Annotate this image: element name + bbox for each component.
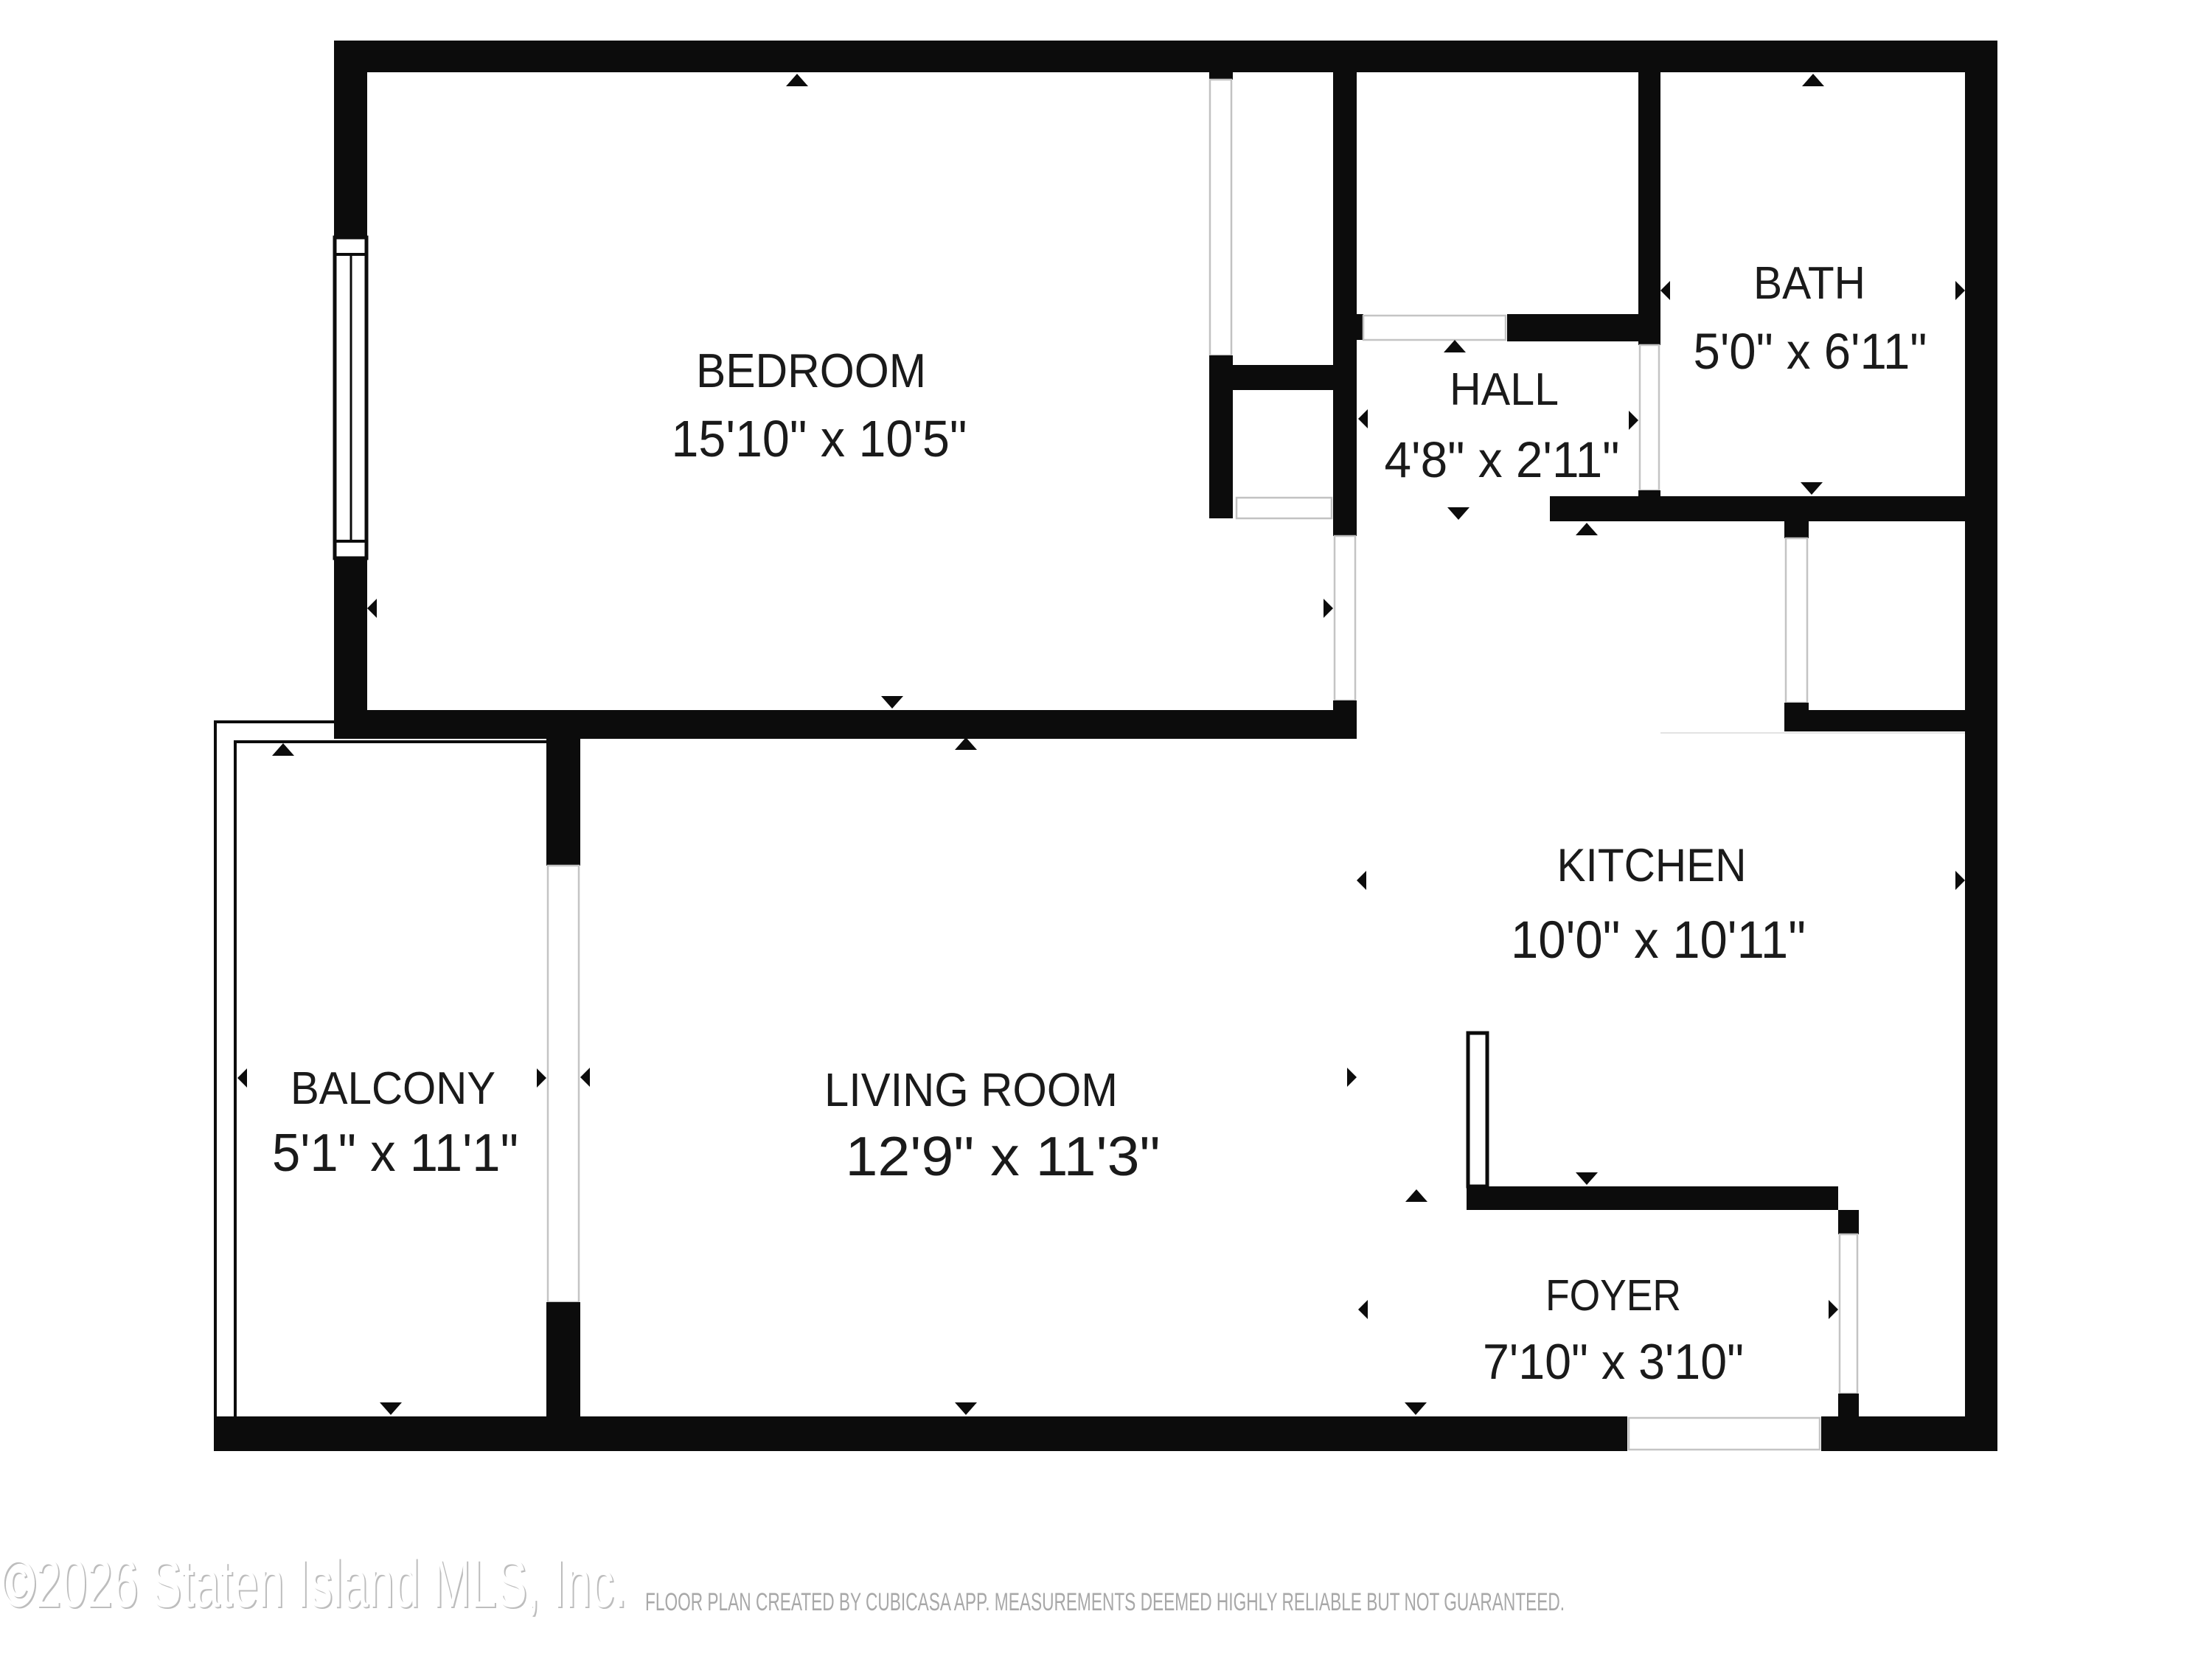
svg-text:FLOOR PLAN CREATED BY CUBICASA: FLOOR PLAN CREATED BY CUBICASA APP. MEAS… (645, 1588, 1565, 1616)
svg-text:12'9" x 11'3": 12'9" x 11'3" (846, 1125, 1161, 1187)
svg-text:7'10" x 3'10": 7'10" x 3'10" (1483, 1334, 1744, 1390)
svg-text:BEDROOM: BEDROOM (696, 344, 926, 397)
svg-text:BATH: BATH (1753, 258, 1865, 309)
svg-text:LIVING ROOM: LIVING ROOM (824, 1063, 1118, 1116)
svg-text:HALL: HALL (1450, 364, 1559, 415)
svg-text:KITCHEN: KITCHEN (1557, 840, 1747, 891)
svg-text:5'0" x 6'11": 5'0" x 6'11" (1694, 323, 1927, 380)
svg-text:5'1" x 11'1": 5'1" x 11'1" (272, 1124, 518, 1183)
svg-text:BALCONY: BALCONY (291, 1063, 495, 1114)
svg-text:4'8" x 2'11": 4'8" x 2'11" (1385, 431, 1620, 488)
svg-text:15'10" x 10'5": 15'10" x 10'5" (672, 410, 967, 467)
svg-text:10'0" x 10'11": 10'0" x 10'11" (1511, 911, 1806, 970)
svg-text:©2026 Staten Island MLS, Inc.: ©2026 Staten Island MLS, Inc. (1, 1546, 627, 1621)
svg-text:FOYER: FOYER (1545, 1271, 1681, 1320)
